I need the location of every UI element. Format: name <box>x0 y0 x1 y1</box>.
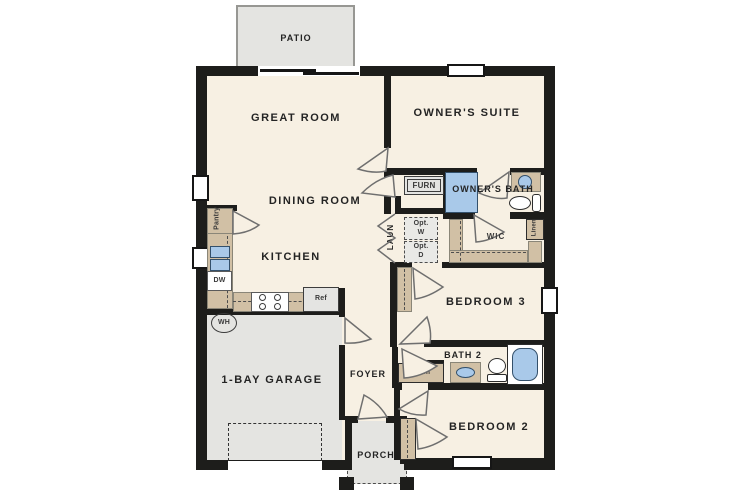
owners-bath-label: OWNER'S BATH <box>452 184 534 195</box>
dishwasher: DW <box>207 271 232 291</box>
owners-toilet-bowl <box>509 196 531 210</box>
porch-label: PORCH <box>347 450 405 461</box>
owners-suite-label: OWNER'S SUITE <box>412 107 522 121</box>
patio-label: PATIO <box>246 33 346 44</box>
bedroom2-label: BEDROOM 2 <box>434 421 544 435</box>
wall-furn-bottom <box>395 208 449 214</box>
porch-stub-right <box>400 477 414 490</box>
sliding-door-panel-2 <box>303 72 359 75</box>
window-greatroom-left <box>192 175 209 201</box>
wall-hall-left <box>384 170 391 214</box>
bath2-linen-closet: Linen <box>398 363 444 383</box>
wic-label: WIC <box>478 232 514 242</box>
dining-room-label: DINING ROOM <box>265 195 365 209</box>
dishwasher-label: DW <box>213 277 225 286</box>
great-room-label: GREAT ROOM <box>246 112 346 126</box>
kitchen-sink-basin-1 <box>210 246 230 258</box>
garage-door-opening <box>228 461 322 471</box>
wall-hall-bedroom3 <box>390 263 397 347</box>
burner-4 <box>274 303 281 310</box>
wic-shelf-dash-bottom <box>451 252 526 253</box>
wall-bath2-bedroom2-a <box>394 383 402 390</box>
water-heater-label: WH <box>218 319 230 328</box>
wall-kitchen-foyer-lower <box>339 345 345 420</box>
refrigerator-label: Ref <box>315 295 327 304</box>
range <box>251 292 289 312</box>
window-bedroom3-right <box>541 287 558 314</box>
optional-washer-label: Opt. W <box>410 220 432 238</box>
bath2-linen-label: Linen <box>412 369 430 377</box>
bedroom2-closet-dash <box>407 420 408 458</box>
optional-washer: Opt. W <box>404 217 438 240</box>
exterior-wall-top <box>196 66 555 76</box>
furnace-label: FURN <box>412 181 435 191</box>
wall-bath-wic-a <box>443 212 475 219</box>
optional-dryer-label: Opt. D <box>410 243 432 261</box>
burner-1 <box>259 294 266 301</box>
garage-door-dashed <box>228 423 322 461</box>
burner-2 <box>274 294 281 301</box>
floor-plan: PATIO Pantry <box>0 0 750 500</box>
furnace: FURN <box>404 176 444 195</box>
wic-linen-label: Linen <box>531 208 539 248</box>
burner-3 <box>259 303 266 310</box>
porch-stub-left <box>339 477 354 490</box>
window-bedroom2-bottom <box>452 456 492 469</box>
bath2-tub-basin <box>512 348 538 381</box>
bedroom3-label: BEDROOM 3 <box>431 296 541 310</box>
wall-bath-wic-b <box>510 212 544 219</box>
bath2-sink <box>456 367 475 378</box>
bedroom3-closet-dash <box>404 269 405 310</box>
refrigerator: Ref <box>303 287 339 312</box>
kitchen-sink-basin-2 <box>210 259 230 271</box>
wall-greatroom-ownersuite <box>384 76 391 148</box>
exterior-wall-right <box>544 66 555 470</box>
bath2-toilet-bowl <box>488 358 506 374</box>
bath2-toilet-base <box>487 374 507 382</box>
garage-label: 1-BAY GARAGE <box>217 374 327 388</box>
wic-shelf-dash-left <box>460 221 461 261</box>
kitchen-label: KITCHEN <box>241 251 341 265</box>
foyer-label: FOYER <box>343 369 393 380</box>
optional-dryer: Opt. D <box>404 241 438 263</box>
laundry-label: LAUN <box>386 217 396 257</box>
water-heater: WH <box>211 313 237 333</box>
bath2-label: BATH 2 <box>436 350 490 361</box>
window-ownersuite-top <box>447 64 485 77</box>
